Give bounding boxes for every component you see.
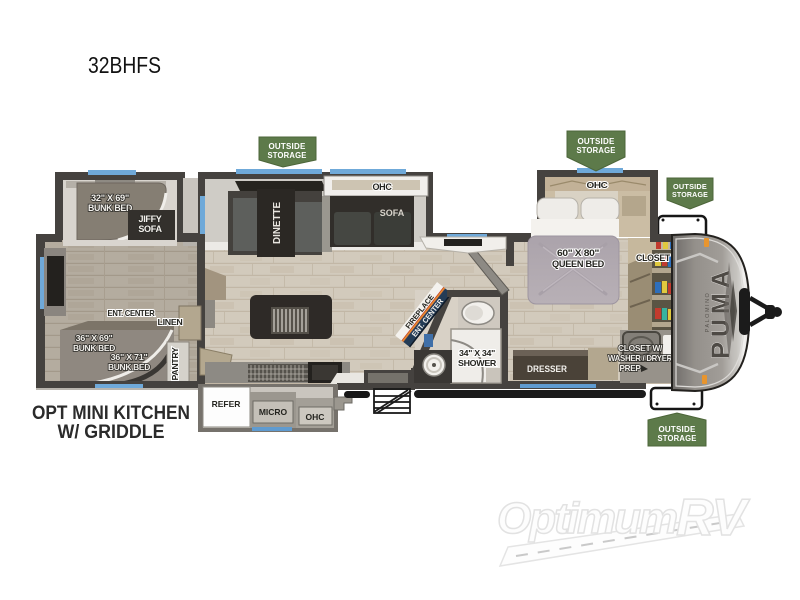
svg-text:STORAGE: STORAGE <box>268 151 307 160</box>
svg-text:JIFFY: JIFFY <box>138 214 161 224</box>
svg-text:STORAGE: STORAGE <box>672 190 708 199</box>
svg-text:OPT MINI KITCHEN: OPT MINI KITCHEN <box>32 403 190 424</box>
svg-text:60" X 80": 60" X 80" <box>557 248 599 259</box>
svg-text:36" X 71": 36" X 71" <box>111 352 148 362</box>
svg-text:36" X 69": 36" X 69" <box>76 333 113 343</box>
svg-text:OUTSIDE: OUTSIDE <box>269 142 306 151</box>
svg-text:34" X 34": 34" X 34" <box>459 348 495 358</box>
svg-text:PANTRY: PANTRY <box>170 347 180 381</box>
svg-text:ENT. CENTER: ENT. CENTER <box>108 308 155 318</box>
svg-text:OptimumRV: OptimumRV <box>497 489 751 547</box>
svg-text:W/ GRIDDLE: W/ GRIDDLE <box>58 422 165 443</box>
svg-text:OUTSIDE: OUTSIDE <box>578 137 615 146</box>
svg-text:BUNK BED: BUNK BED <box>73 343 115 353</box>
svg-text:MICRO: MICRO <box>259 407 288 417</box>
svg-text:SHOWER: SHOWER <box>458 358 496 368</box>
svg-text:QUEEN BED: QUEEN BED <box>552 259 604 270</box>
svg-text:DINETTE: DINETTE <box>271 202 283 244</box>
svg-text:OUTSIDE: OUTSIDE <box>659 425 696 434</box>
svg-text:STORAGE: STORAGE <box>658 434 697 443</box>
svg-text:BUNK BED: BUNK BED <box>108 362 150 372</box>
svg-text:OHC: OHC <box>372 182 392 192</box>
svg-text:32BHFS: 32BHFS <box>88 52 161 78</box>
svg-text:SOFA: SOFA <box>380 208 405 218</box>
svg-text:WASHER / DRYER: WASHER / DRYER <box>608 353 672 363</box>
svg-text:BUNK BED: BUNK BED <box>88 203 133 213</box>
svg-text:LINEN: LINEN <box>158 317 183 327</box>
svg-text:PALOMINO: PALOMINO <box>705 292 711 333</box>
svg-text:DRESSER: DRESSER <box>527 364 567 374</box>
svg-text:CLOSET W/: CLOSET W/ <box>618 343 663 353</box>
svg-text:PREP: PREP <box>620 363 642 373</box>
svg-text:CLOSET: CLOSET <box>636 253 671 263</box>
svg-text:SOFA: SOFA <box>138 224 162 234</box>
svg-text:OHC: OHC <box>587 180 608 190</box>
svg-text:OHC: OHC <box>306 412 325 422</box>
svg-text:STORAGE: STORAGE <box>577 146 616 155</box>
svg-text:REFER: REFER <box>212 399 241 409</box>
svg-text:32" X 69": 32" X 69" <box>91 193 129 203</box>
